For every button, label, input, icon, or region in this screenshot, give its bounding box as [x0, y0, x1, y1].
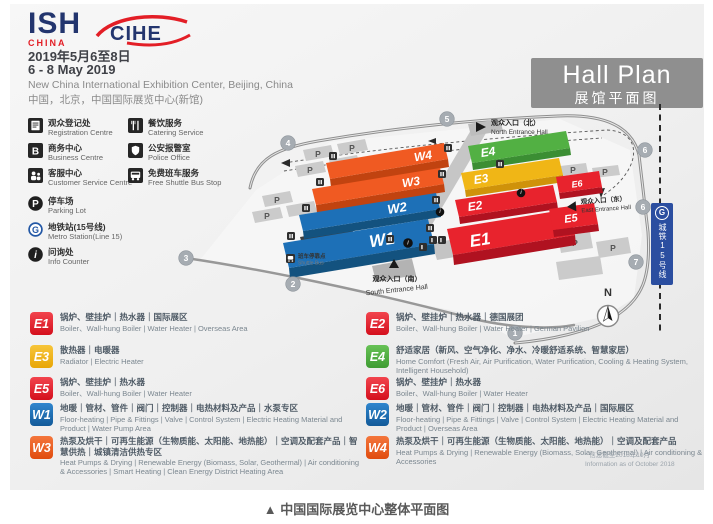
svg-text:P: P [610, 243, 616, 253]
svg-text:观众入口（南）: 观众入口（南） [373, 274, 422, 283]
compass-n-label: N [604, 287, 612, 299]
cihe-logo-text: CIHE [110, 23, 162, 45]
facility-label: 观众登记处 [48, 118, 113, 128]
route-arrow-left-icon [281, 159, 290, 167]
venue-en: New China International Exhibition Cente… [28, 79, 293, 91]
svg-text:G: G [32, 225, 39, 235]
road-marker-4: 4 [281, 136, 296, 151]
hall-badge-w3: W3 [30, 436, 53, 459]
hall-label-e2: E2 [467, 198, 484, 214]
svg-text:P: P [32, 199, 39, 210]
svg-text:P: P [274, 195, 280, 205]
legend-row-e4: E4 舒适家居（新风、空气净化、净水、冷暖舒适系统、智慧家居）Home Comf… [366, 345, 704, 375]
hall-label-w3: W3 [401, 174, 421, 191]
road-marker-5: 5 [440, 112, 455, 127]
svg-text:7: 7 [634, 257, 639, 267]
svg-text:4: 4 [286, 138, 291, 148]
info-icon: i [28, 247, 43, 262]
facility-customer-service: 客服中心Customer Service Centre [28, 168, 132, 187]
svg-text:P: P [315, 149, 321, 159]
facility-parking: P 停车场Parking Lot [28, 196, 86, 215]
parking-icon: P [28, 196, 43, 211]
legend-row-e1: E1 锅炉、壁挂炉｜热水器｜国际展区Boiler、Wall-hung Boile… [30, 312, 360, 335]
hall-label-w2: W2 [386, 199, 408, 217]
caption-marker-icon: ▲ [264, 502, 277, 517]
svg-text:i: i [34, 250, 37, 261]
svg-text:6: 6 [643, 145, 648, 155]
ish-logo-text: ISH [28, 10, 81, 38]
metro-logo-icon: G [655, 206, 669, 220]
svg-text:3: 3 [184, 253, 189, 263]
business-centre-icon: B [28, 143, 43, 158]
facility-info: i 问询处Info Counter [28, 247, 89, 266]
hall-label-e4: E4 [480, 144, 497, 160]
hall-badge-w4: W4 [366, 436, 389, 459]
road-marker-6a: 6 [638, 143, 653, 158]
svg-text:班车停靠点: 班车停靠点 [298, 252, 326, 260]
hall-label-e5: E5 [563, 212, 579, 226]
page-caption: ▲ 中国国际展览中心整体平面图 [0, 499, 713, 518]
road-marker-2: 2 [286, 277, 301, 292]
hall-badge-e1: E1 [30, 312, 53, 335]
footnote-zh: * 信息截至2018年10月 [585, 452, 703, 461]
hall-badge-e6: E6 [366, 377, 389, 400]
hall-plan-page: { "header": { "logo_ish": {"text": "ISH"… [0, 0, 713, 524]
facility-business: B 商务中心Business Centre [28, 143, 103, 162]
metro-line-banner: G 城铁15号线 [651, 203, 673, 285]
caption-text: 中国国际展览中心整体平面图 [280, 502, 449, 517]
svg-text:6: 6 [641, 202, 646, 212]
legend-row-e3: E3 散热器｜电暖器Radiator | Electric Heater [30, 345, 360, 368]
hall-label-e1: E1 [468, 229, 492, 251]
hall-badge-e4: E4 [366, 345, 389, 368]
registration-icon [28, 118, 43, 133]
svg-text:P: P [570, 165, 576, 175]
footnote: * 信息截至2018年10月 Information as of October… [585, 452, 703, 469]
hall-badge-w1: W1 [30, 403, 53, 426]
ish-logo: ISH CHINA [28, 10, 81, 48]
customer-service-icon [28, 168, 43, 183]
cihe-logo: CIHE [93, 12, 197, 48]
facility-metro: G 地铁站(15号线)Metro Station(Line 15) [28, 222, 122, 241]
svg-text:B: B [32, 146, 39, 157]
catering-icon [128, 118, 143, 133]
hall-badge-e2: E2 [366, 312, 389, 335]
legend-row-w3: W3 热泵及烘干｜可再生能源（生物质能、太阳能、地热能）｜空调及配套产品｜智慧供… [30, 436, 360, 476]
metro-line-banner-text: 城铁15号线 [651, 221, 673, 281]
svg-text:5: 5 [445, 114, 450, 124]
svg-text:观众入口（北）: 观众入口（北） [491, 118, 540, 127]
hall-label-e3: E3 [473, 171, 490, 187]
legend-row-e5: E5 锅炉、壁挂炉｜热水器Boiler、Wall-hung Boiler | W… [30, 377, 360, 400]
svg-text:Shuttle Bus: Shuttle Bus [298, 261, 324, 267]
facility-registration: 观众登记处Registration Centre [28, 118, 113, 137]
footnote-en: Information as of October 2018 [585, 461, 703, 470]
hall-plan-title-en: Hall Plan [531, 58, 703, 90]
svg-text:2: 2 [291, 279, 296, 289]
road-marker-6b: 6 [636, 200, 651, 215]
metro-icon: G [28, 222, 43, 237]
legend-row-e6: E6 锅炉、壁挂炉｜热水器Boiler、Wall-hung Boiler | W… [366, 377, 704, 400]
hall-badge-e3: E3 [30, 345, 53, 368]
svg-text:P: P [602, 167, 608, 177]
legend-row-e2: E2 锅炉、壁挂炉｜热水器｜德国展团Boiler、Wall-hung Boile… [366, 312, 704, 335]
svg-text:North Entrance Hall: North Entrance Hall [491, 129, 548, 136]
hall-label-w4: W4 [413, 148, 433, 165]
svg-text:P: P [264, 211, 270, 221]
hall-badge-w2: W2 [366, 403, 389, 426]
legend-row-w1: W1 地暖｜管材、管件｜阀门｜控制器｜电热材料及产品｜水泵专区Floor-hea… [30, 403, 360, 433]
svg-text:P: P [307, 165, 313, 175]
shuttle-bus-icon [128, 168, 143, 183]
svg-text:P: P [349, 143, 355, 153]
road-marker-7: 7 [629, 255, 644, 270]
road-marker-3: 3 [179, 251, 194, 266]
police-icon [128, 143, 143, 158]
date-en: 6 - 8 May 2019 [28, 62, 115, 77]
legend-row-w2: W2 地暖｜管材、管件｜阀门｜控制器｜电热材料及产品｜国际展区Floor-hea… [366, 403, 704, 433]
hall-badge-e5: E5 [30, 377, 53, 400]
